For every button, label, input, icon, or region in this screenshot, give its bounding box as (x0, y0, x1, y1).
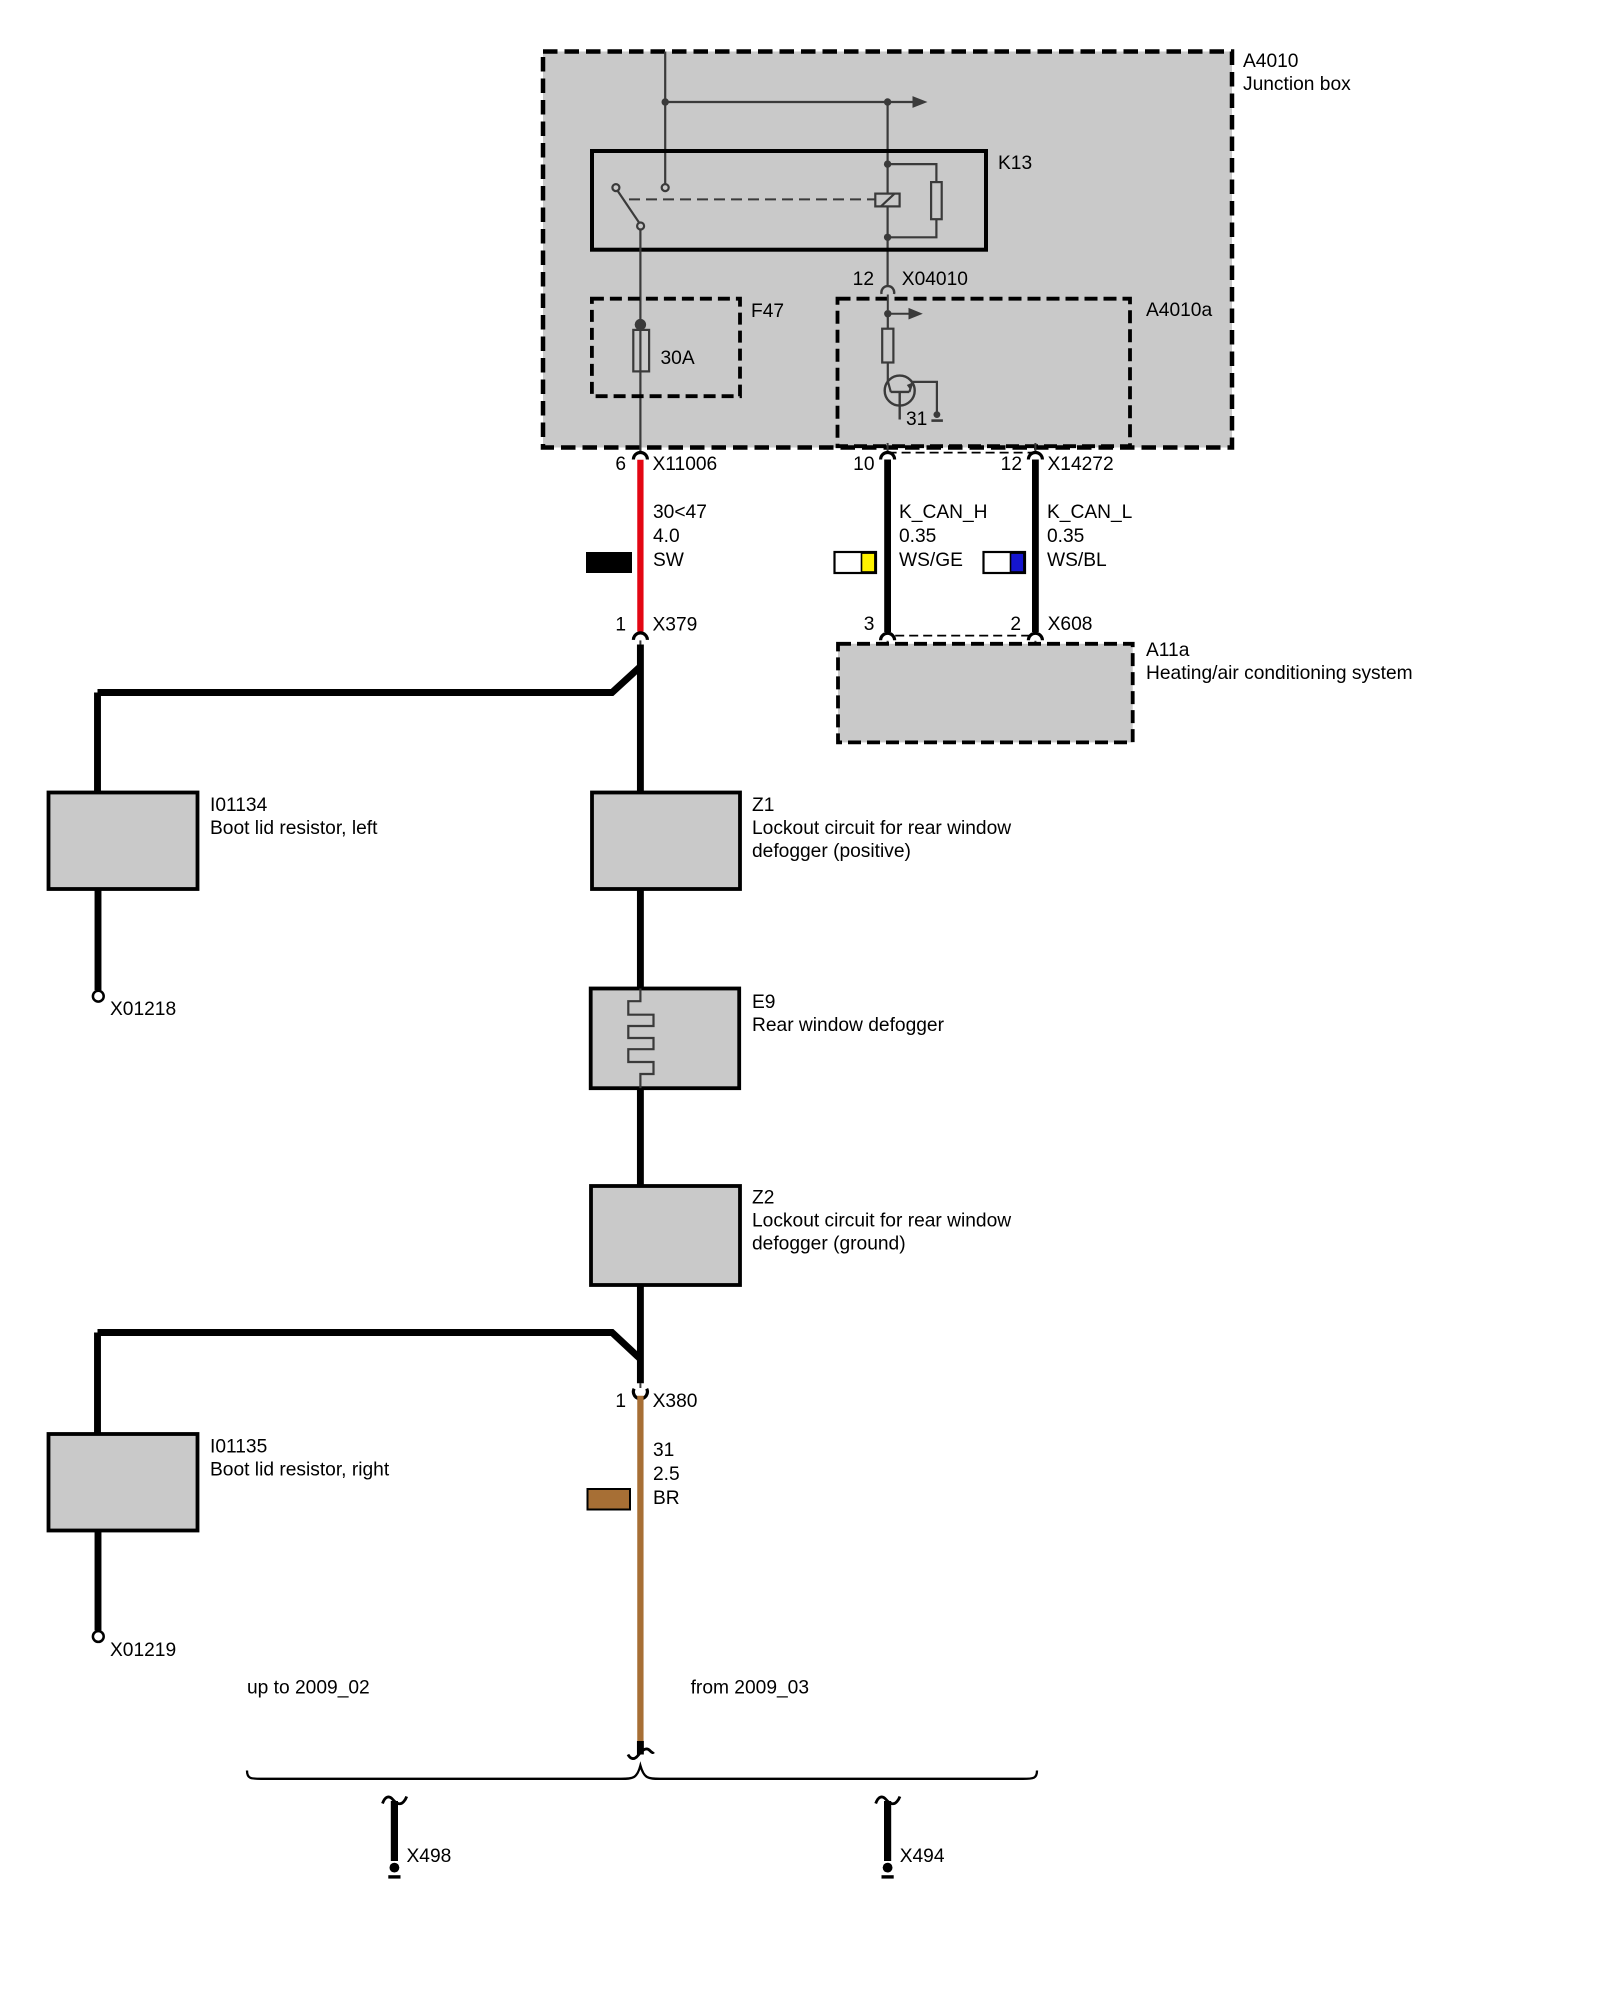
svg-text:Rear window defogger: Rear window defogger (752, 1015, 945, 1036)
svg-text:Lockout circuit for rear windo: Lockout circuit for rear window (752, 818, 1011, 839)
svg-text:3: 3 (864, 614, 875, 635)
svg-text:12: 12 (1001, 454, 1022, 475)
svg-text:Lockout circuit for rear windo: Lockout circuit for rear window (752, 1211, 1011, 1232)
svg-text:0.35: 0.35 (899, 526, 936, 547)
svg-text:Boot lid resistor, left: Boot lid resistor, left (210, 818, 378, 839)
svg-text:X01219: X01219 (110, 1640, 176, 1661)
svg-text:F47: F47 (751, 301, 784, 322)
svg-text:X494: X494 (900, 1846, 945, 1867)
svg-text:from 2009_03: from 2009_03 (691, 1678, 809, 1699)
svg-text:12: 12 (853, 269, 874, 290)
svg-text:X608: X608 (1048, 614, 1093, 635)
svg-text:up to 2009_02: up to 2009_02 (247, 1678, 370, 1699)
svg-text:Z1: Z1 (752, 795, 774, 816)
svg-text:30A: 30A (661, 348, 695, 369)
svg-text:X04010: X04010 (902, 269, 968, 290)
svg-text:I01134: I01134 (210, 795, 268, 816)
svg-text:X11006: X11006 (653, 454, 718, 475)
svg-text:A4010: A4010 (1243, 51, 1298, 72)
svg-text:1: 1 (615, 615, 626, 636)
svg-text:E9: E9 (752, 992, 775, 1013)
svg-text:X498: X498 (407, 1846, 452, 1867)
svg-text:1: 1 (615, 1391, 626, 1412)
svg-text:2.5: 2.5 (653, 1464, 680, 1485)
svg-text:10: 10 (853, 454, 874, 475)
svg-text:4.0: 4.0 (653, 526, 680, 547)
svg-text:0.35: 0.35 (1047, 526, 1084, 547)
svg-text:defogger (positive): defogger (positive) (752, 841, 911, 862)
svg-text:WS/BL: WS/BL (1047, 550, 1107, 571)
svg-text:BR: BR (653, 1488, 680, 1509)
svg-text:K13: K13 (998, 153, 1032, 174)
svg-text:Heating/air conditioning syste: Heating/air conditioning system (1146, 663, 1413, 684)
svg-text:K_CAN_H: K_CAN_H (899, 502, 988, 523)
svg-text:I01135: I01135 (210, 1437, 267, 1458)
svg-text:WS/GE: WS/GE (899, 550, 963, 571)
svg-text:K_CAN_L: K_CAN_L (1047, 502, 1133, 523)
svg-text:6: 6 (615, 454, 626, 475)
svg-text:defogger (ground): defogger (ground) (752, 1234, 906, 1255)
svg-text:31: 31 (906, 409, 927, 430)
svg-text:31: 31 (653, 1440, 674, 1461)
svg-text:SW: SW (653, 550, 685, 571)
svg-text:2: 2 (1010, 614, 1021, 635)
svg-text:Boot lid resistor, right: Boot lid resistor, right (210, 1460, 390, 1481)
svg-text:A11a: A11a (1146, 640, 1190, 661)
svg-text:X01218: X01218 (110, 999, 176, 1020)
svg-text:A4010a: A4010a (1146, 300, 1212, 321)
svg-text:X14272: X14272 (1048, 454, 1114, 475)
svg-text:Junction box: Junction box (1243, 74, 1351, 95)
svg-text:X379: X379 (653, 615, 698, 636)
svg-text:X380: X380 (653, 1391, 698, 1412)
svg-text:30<47: 30<47 (653, 502, 707, 523)
svg-text:Z2: Z2 (752, 1188, 774, 1209)
